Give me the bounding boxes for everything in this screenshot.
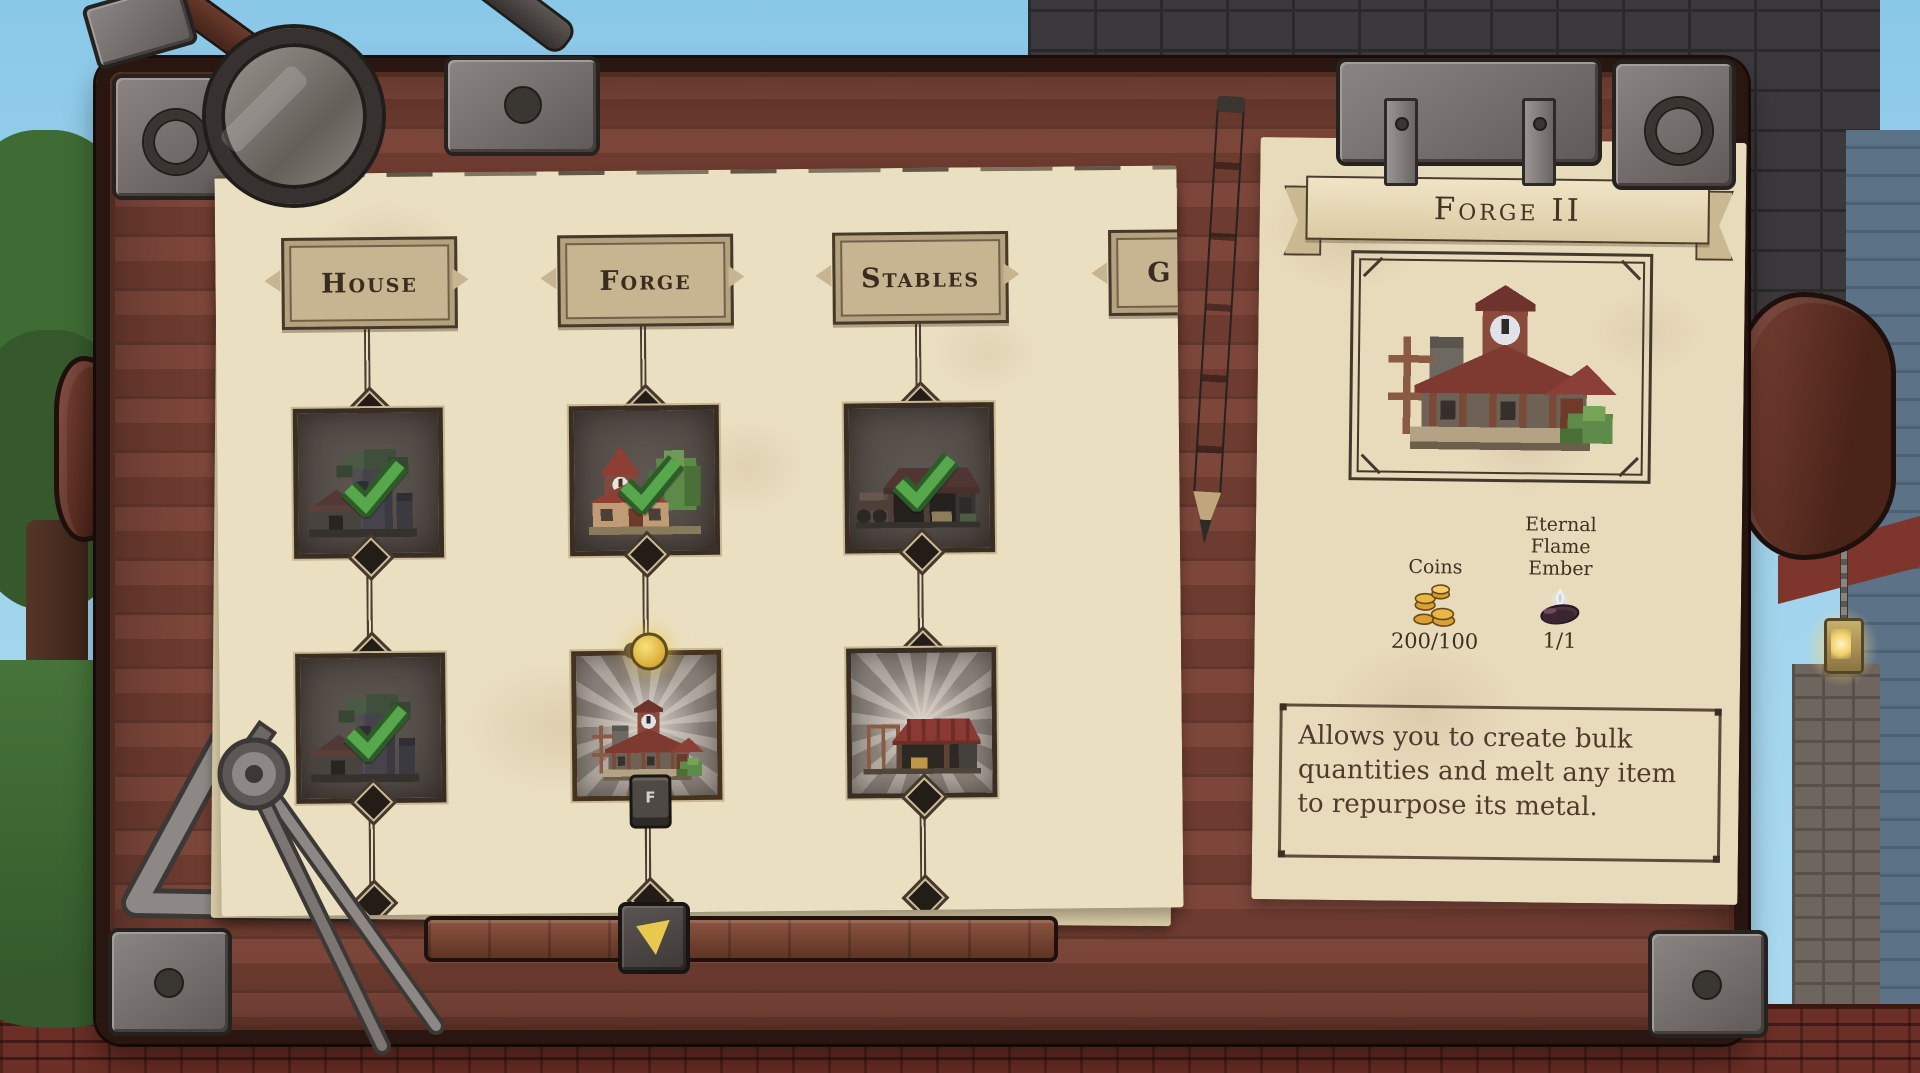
tech-node-house-1[interactable]: [293, 407, 444, 558]
tech-column-stables: Stables: [832, 231, 1009, 917]
clip-prong-icon: [1522, 98, 1556, 186]
barn-construction-art: [863, 696, 982, 785]
tech-node-stables-1[interactable]: [844, 402, 995, 553]
column-label: Forge: [599, 265, 692, 297]
corner-plate-top-right: [1612, 60, 1736, 190]
cost-value: 1/1: [1542, 629, 1576, 653]
column-label: House: [321, 267, 418, 299]
game-screen: House Forge: [0, 0, 1920, 1073]
plaque-arrow-left-icon: [264, 270, 280, 292]
magnifying-glass-icon: [206, 28, 382, 204]
plaque-arrow-left-icon: [540, 267, 556, 289]
scroll-handle-arrow-icon: [636, 920, 672, 956]
column-label: Stables: [861, 262, 980, 294]
cost-coins: Coins 200/100: [1378, 531, 1491, 654]
tech-node-stables-2[interactable]: [846, 647, 997, 798]
clip-prong-icon: [1384, 98, 1418, 186]
building-illustration-frame: [1348, 250, 1653, 484]
cost-ember: Eternal Flame Ember 1/1: [1494, 532, 1625, 654]
detail-title: Forge II: [1434, 191, 1583, 229]
corner-plate-bottom-right: [1648, 930, 1768, 1038]
drawing-compass: [150, 690, 470, 1070]
tech-column-forge: Forge F: [557, 234, 734, 917]
plaque-arrow-right-icon: [1003, 263, 1019, 285]
panel-clip-plate: [1336, 58, 1602, 166]
plaque-arrow-left-icon: [1091, 262, 1107, 284]
lantern: [1824, 618, 1864, 674]
top-bracket: [444, 56, 600, 156]
description-box: Allows you to create bulk quantities and…: [1278, 703, 1722, 862]
lightbulb-icon: [630, 632, 668, 670]
plaque-arrow-left-icon: [815, 265, 831, 287]
detail-panel-paper: Forge II Coins 200/100 Eternal Flame Emb…: [1251, 137, 1746, 905]
support-rod-icon: [401, 0, 579, 57]
ember-icon: [1536, 586, 1584, 627]
column-header-forge: Forge: [557, 234, 734, 328]
description-text: Allows you to create bulk quantities and…: [1297, 721, 1676, 823]
column-header-stables: Stables: [832, 231, 1009, 325]
column-header-g-partial: G: [1108, 228, 1184, 316]
completed-check-icon: [611, 450, 688, 515]
right-roller-handle: [1736, 292, 1896, 560]
plaque-arrow-right-icon: [728, 266, 744, 288]
horizontal-scrollbar-track[interactable]: [424, 916, 1058, 962]
cost-name: Coins: [1408, 531, 1463, 580]
column-header-house: House: [281, 236, 458, 330]
horizontal-scrollbar-handle[interactable]: [618, 902, 690, 974]
tech-node-forge-1[interactable]: [569, 405, 720, 556]
hotkey-letter: F: [645, 788, 655, 806]
hotkey-hint-badge: F: [629, 774, 672, 828]
coins-icon: [1411, 583, 1460, 628]
cost-name: Eternal Flame Ember: [1495, 532, 1626, 582]
plaque-arrow-right-icon: [452, 268, 468, 290]
forge-clocktower-illustration: [1380, 284, 1622, 467]
completed-check-icon: [335, 453, 412, 518]
completed-check-icon: [886, 447, 963, 512]
column-label: G: [1147, 257, 1172, 288]
cost-value: 200/100: [1391, 629, 1479, 654]
